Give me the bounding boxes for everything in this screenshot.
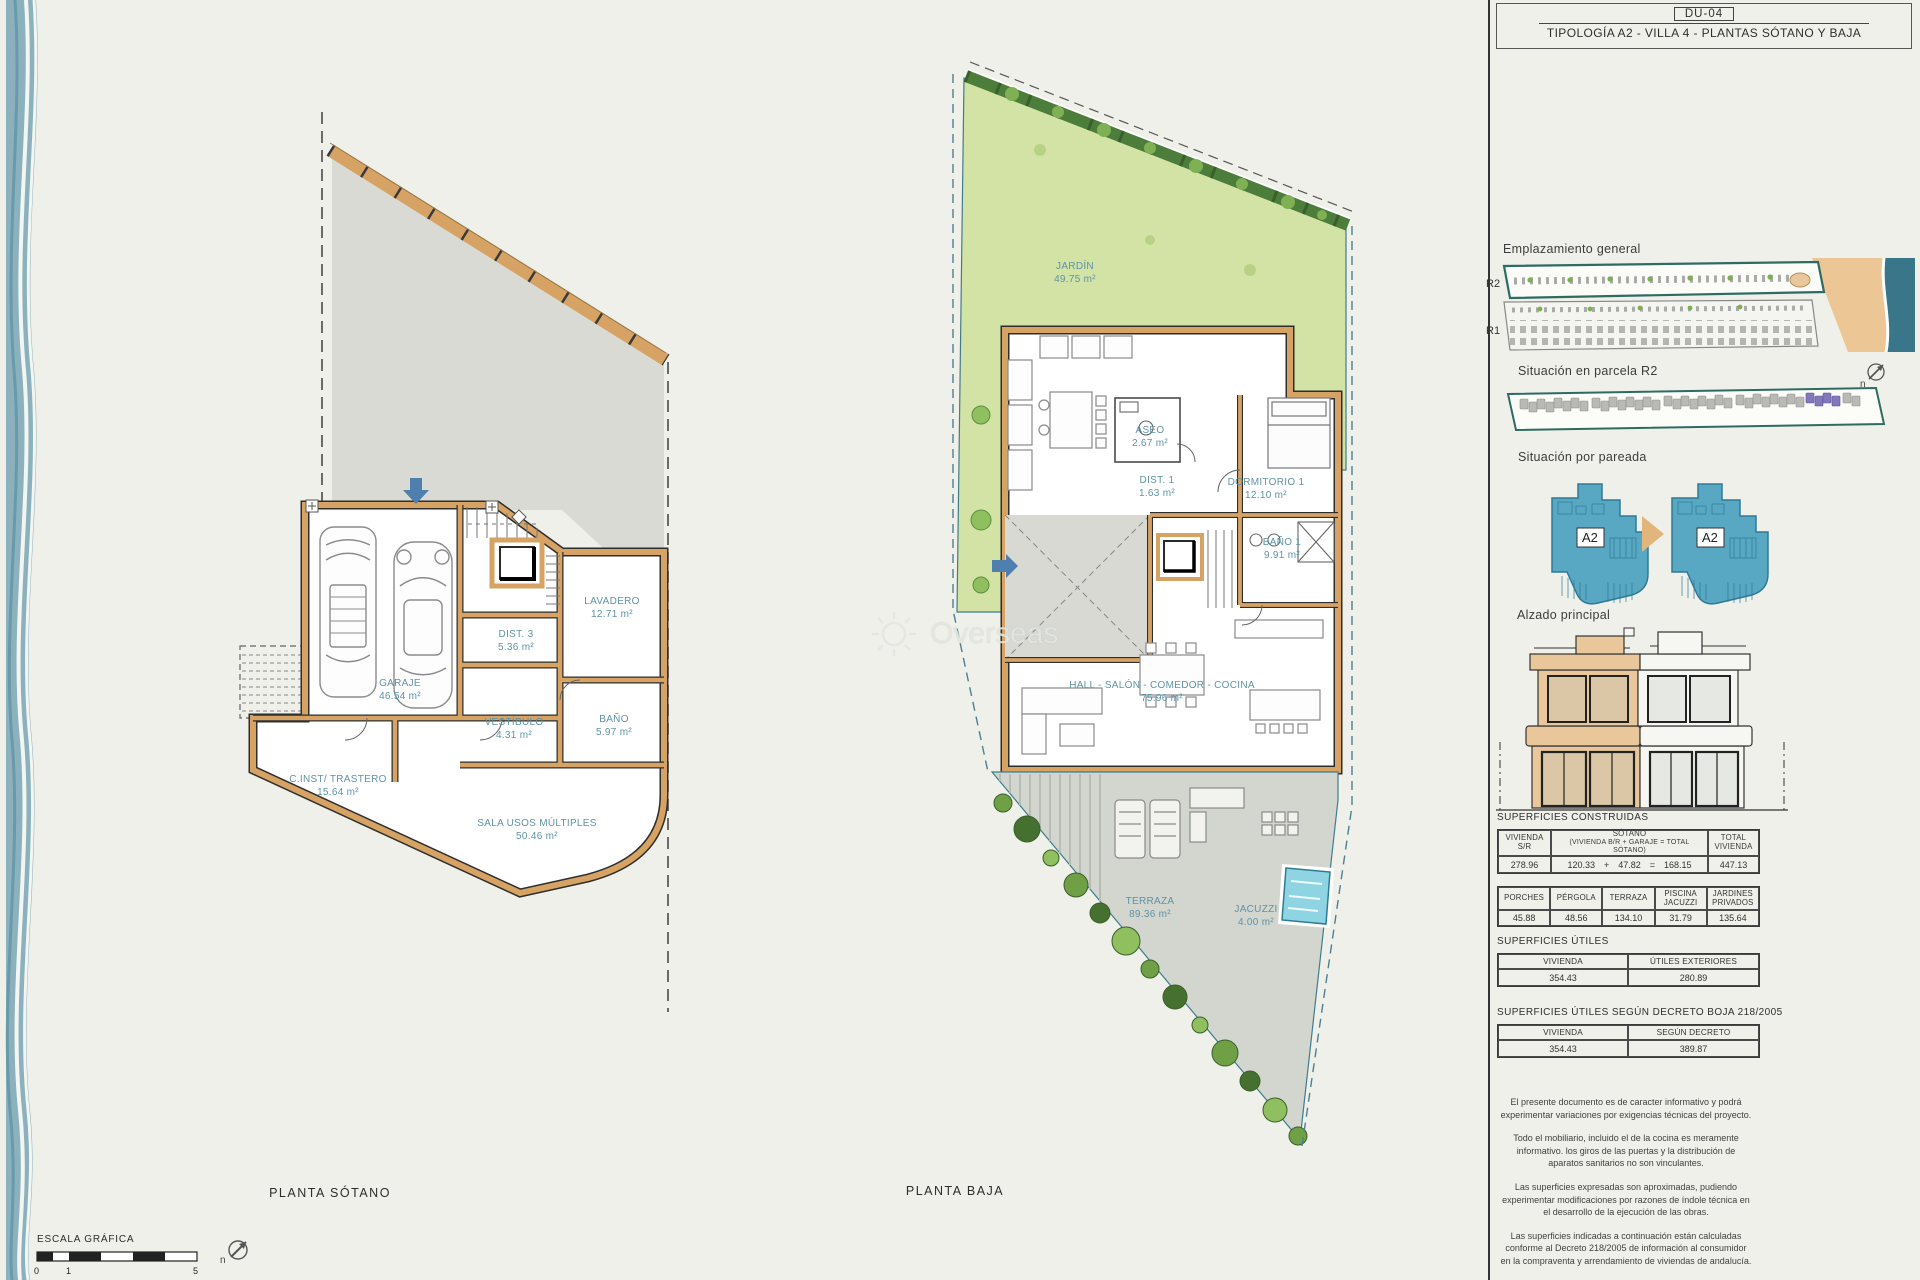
emplazamiento-map: R2 R1 n xyxy=(1486,258,1915,390)
watermark-sun-icon xyxy=(868,608,920,660)
th-sotano: SÓTANO (VIVIENDA B/R + GARAJE = TOTAL SÓ… xyxy=(1551,830,1708,856)
elevator-icon xyxy=(492,540,542,586)
svg-text:5: 5 xyxy=(193,1266,198,1276)
sidebar-north-arrow-icon xyxy=(1868,364,1884,380)
sotano-driveway-area xyxy=(332,158,664,558)
scale-bar: 0 1 5 n xyxy=(30,1225,270,1280)
table-title-utiles: SUPERFICIES ÚTILES xyxy=(1497,936,1609,947)
title-divider-line xyxy=(1539,23,1869,24)
note-paragraph: Todo el mobiliario, incluido el de la co… xyxy=(1500,1132,1752,1170)
title-block: DU-04 TIPOLOGÍA A2 - VILLA 4 - PLANTAS S… xyxy=(1496,3,1912,49)
td-segun-decreto: 389.87 xyxy=(1628,1040,1759,1057)
bedroom-furniture xyxy=(1268,398,1330,468)
table-construidas-1: VIVIENDA S/R SÓTANO (VIVIENDA B/R + GARA… xyxy=(1497,829,1760,874)
entry-void-area xyxy=(1005,515,1150,660)
td-sotano: 120.33 + 47.82 = 168.15 xyxy=(1551,856,1708,873)
svg-text:0: 0 xyxy=(34,1266,39,1276)
room-label-garaje: GARAJE46.54 m² xyxy=(379,677,421,703)
th-segun-decreto: SEGÚN DECRETO xyxy=(1628,1025,1759,1040)
th-piscina-jacuzzi: PISCINA JACUZZI xyxy=(1655,887,1707,910)
room-label-jardin: JARDÍN49.75 m² xyxy=(1054,260,1096,286)
room-label-jacuzzi: JACUZZI4.00 m² xyxy=(1234,903,1277,929)
room-label-terraza: TERRAZA89.36 m² xyxy=(1126,895,1175,921)
th-terraza: TERRAZA xyxy=(1602,887,1654,910)
td-decreto-vivienda: 354.43 xyxy=(1498,1040,1628,1057)
floor-plan-sotano xyxy=(215,85,705,1035)
jacuzzi-pool xyxy=(1278,864,1334,928)
th-decreto-vivienda: VIVIENDA xyxy=(1498,1025,1628,1040)
th-pergola: PÉRGOLA xyxy=(1550,887,1602,910)
car-icon-suv xyxy=(320,527,376,697)
svg-text:n: n xyxy=(220,1255,226,1266)
table-decreto: VIVIENDA SEGÚN DECRETO 354.43 389.87 xyxy=(1497,1024,1760,1058)
alzado-drawing xyxy=(1496,628,1788,812)
drawing-sheet: GARAJE46.54 m² LAVADERO12.71 m² DIST. 35… xyxy=(0,0,1920,1280)
room-label-sala-usos: SALA USOS MÚLTIPLES50.46 m² xyxy=(477,817,596,843)
room-label-trastero: C.INST/ TRASTERO15.64 m² xyxy=(289,773,386,799)
svg-text:A2: A2 xyxy=(1702,530,1718,545)
td-pergola: 48.56 xyxy=(1550,910,1602,926)
sidebar-graphics: R2 R1 n xyxy=(1480,230,1920,830)
td-terraza: 134.10 xyxy=(1602,910,1654,926)
th-utiles-exteriores: ÚTILES EXTERIORES xyxy=(1628,954,1759,969)
td-utiles-exteriores: 280.89 xyxy=(1628,969,1759,986)
pareada-arrow-icon xyxy=(1642,516,1664,552)
north-arrow-icon xyxy=(229,1241,247,1259)
td-vivienda-sr: 278.96 xyxy=(1498,856,1551,873)
sheet-code: DU-04 xyxy=(1674,7,1734,21)
table-title-decreto: SUPERFICIES ÚTILES SEGÚN DECRETO BOJA 21… xyxy=(1497,1007,1783,1018)
legal-notes: El presente documento es de caracter inf… xyxy=(1500,1096,1752,1279)
td-piscina-jacuzzi: 31.79 xyxy=(1655,910,1707,926)
room-label-bano1: BAÑO 19.91 m² xyxy=(1263,536,1301,562)
th-total-vivienda: TOTAL VIVIENDA xyxy=(1708,830,1759,856)
note-paragraph: El presente documento es de caracter inf… xyxy=(1500,1096,1752,1121)
caption-planta-sotano: PLANTA SÓTANO xyxy=(269,1186,391,1200)
room-label-dormitorio1: DORMITORIO 112.10 m² xyxy=(1228,476,1305,502)
td-jardines-privados: 135.64 xyxy=(1707,910,1759,926)
room-label-lavadero: LAVADERO12.71 m² xyxy=(584,595,639,621)
svg-text:R2: R2 xyxy=(1486,278,1500,290)
note-paragraph: Las superficies indicadas a continuación… xyxy=(1500,1230,1752,1268)
table-title-construidas: SUPERFICIES CONSTRUIDAS xyxy=(1497,812,1648,823)
floor-plan-baja xyxy=(925,40,1385,1180)
table-utiles: VIVIENDA ÚTILES EXTERIORES 354.43 280.89 xyxy=(1497,953,1760,987)
svg-text:1: 1 xyxy=(66,1266,71,1276)
parcela-strip xyxy=(1508,388,1884,430)
svg-text:R1: R1 xyxy=(1486,325,1500,337)
pareada-diagram: A2 A2 xyxy=(1552,484,1768,604)
caption-planta-baja: PLANTA BAJA xyxy=(906,1184,1004,1198)
td-utiles-vivienda: 354.43 xyxy=(1498,969,1628,986)
note-paragraph: Las superficies expresadas son aproximad… xyxy=(1500,1181,1752,1219)
th-porches: PORCHES xyxy=(1498,887,1550,910)
th-jardines-privados: JARDINES PRIVADOS xyxy=(1707,887,1759,910)
td-porches: 45.88 xyxy=(1498,910,1550,926)
table-construidas-2: PORCHES PÉRGOLA TERRAZA PISCINA JACUZZI … xyxy=(1497,886,1760,927)
room-label-aseo: ASEO2.67 m² xyxy=(1132,424,1168,450)
sea-ribbon xyxy=(0,0,60,1280)
room-label-bano: BAÑO5.97 m² xyxy=(596,713,632,739)
th-vivienda-sr: VIVIENDA S/R xyxy=(1498,830,1551,856)
td-total-vivienda: 447.13 xyxy=(1708,856,1759,873)
room-label-vestibulo: VESTÍBULO4.31 m² xyxy=(485,716,544,742)
room-label-dist1: DIST. 11.63 m² xyxy=(1139,474,1175,500)
th-utiles-vivienda: VIVIENDA xyxy=(1498,954,1628,969)
exterior-stair xyxy=(240,646,305,718)
room-label-hall-salon: HALL - SALÓN - COMEDOR - COCINA75.96 m² xyxy=(1069,679,1255,705)
svg-text:A2: A2 xyxy=(1582,530,1598,545)
room-label-dist3: DIST. 35.36 m² xyxy=(498,628,534,654)
sheet-title: TIPOLOGÍA A2 - VILLA 4 - PLANTAS SÓTANO … xyxy=(1547,26,1861,40)
